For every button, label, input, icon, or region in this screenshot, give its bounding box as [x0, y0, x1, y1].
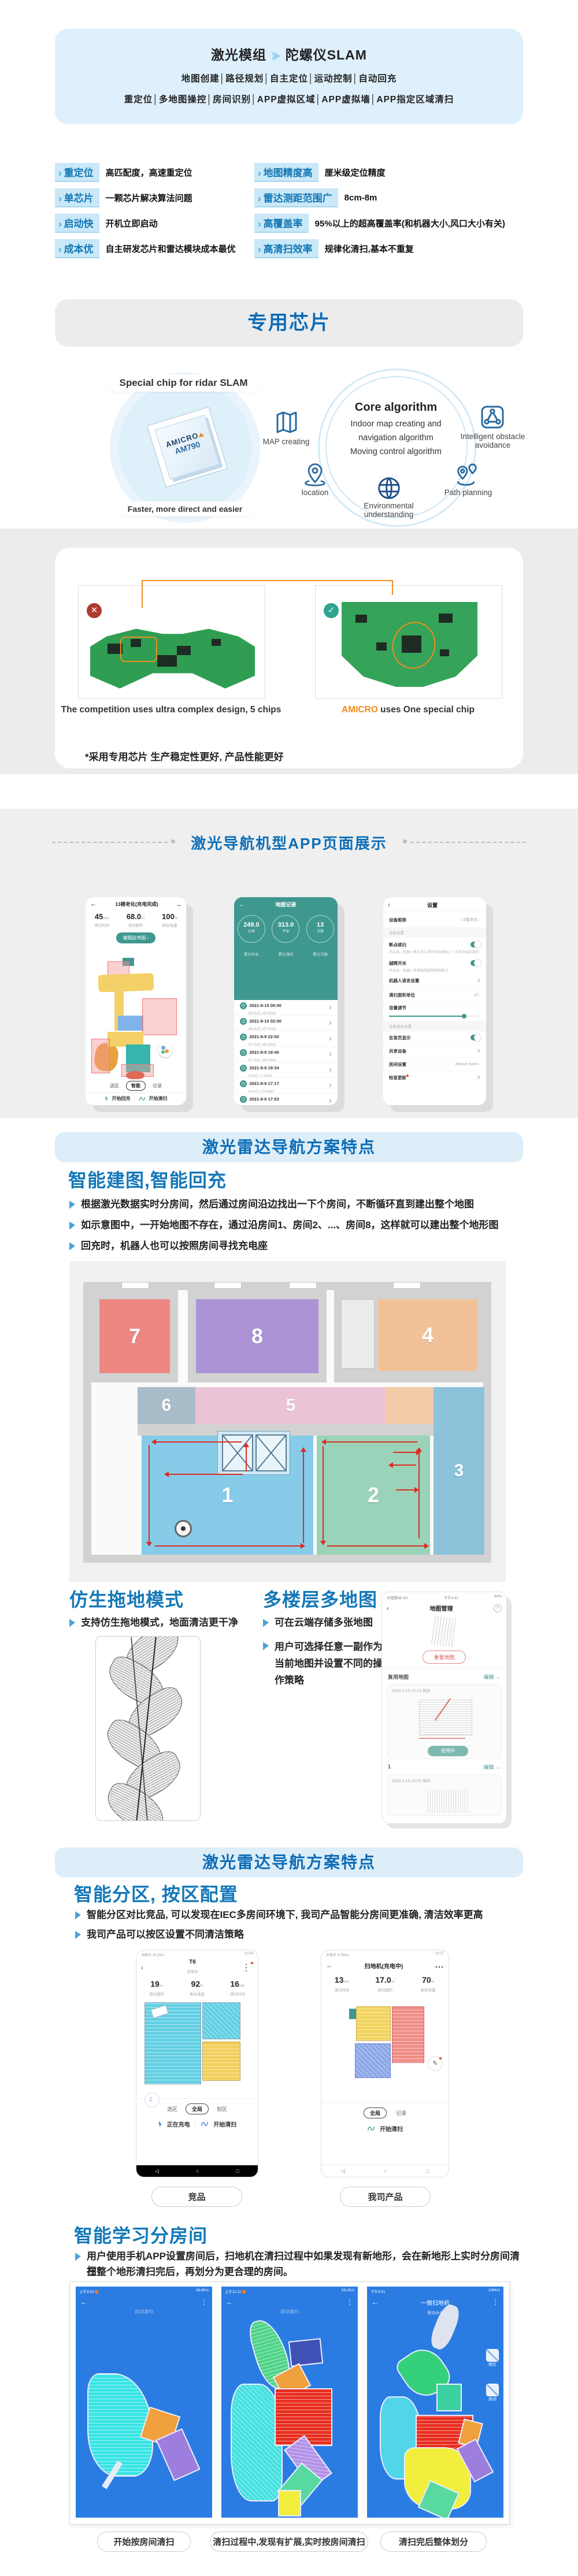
path-arrow [393, 1452, 416, 1453]
obstacle-avoidance-icon [479, 403, 506, 434]
zones-heading: 智能分区, 按区配置 [74, 1880, 238, 1906]
path-arrow [149, 1445, 150, 1542]
stat: 100%剩余电量 [162, 912, 177, 928]
bullet-arrow-icon [69, 1200, 75, 1209]
bullet: 回充时，机器人也可以按照房间寻找充电座 [69, 1239, 520, 1254]
record-list: ◷ 2021-8-10 06:0068.0㎡ | 45.0min› ◷ 2021… [234, 1000, 338, 1105]
stat: 19㎡清扫面积 [149, 1979, 164, 1997]
feature-grid: ›重定位高匹配度，高速重定位 ›地图精度高厘米级定位精度 ›单芯片一颗芯片解决算… [55, 159, 529, 261]
floorplan-diagram: 7 8 4 6 5 3 1 2 [69, 1261, 506, 1582]
our-phone-title: 扫地机(充电中) [365, 1961, 403, 1970]
chevron-icon: › [258, 218, 261, 229]
chip-highlight-annotation [120, 637, 157, 662]
competitor-phone-title: T6 [187, 1959, 198, 1965]
clock-icon: ◷ [240, 1080, 247, 1087]
total-circle: 13次数 [306, 915, 334, 943]
room-2: 2 [317, 1436, 430, 1555]
path-arrow [303, 1452, 304, 1543]
app-phone-map: ← 13楼老化(充电完成) … 45min清扫时间 68.0㎡清扫面积 100%… [86, 897, 186, 1105]
setting-row-update[interactable]: 检查更新› [383, 1070, 486, 1084]
auto-clean-title: 自动清扫 [76, 2309, 212, 2315]
start-clean-button[interactable]: 开始清扫 [213, 2120, 236, 2128]
clock-icon: ◷ [240, 1096, 247, 1103]
competitor-pcb [90, 626, 255, 690]
edit-link[interactable]: 编辑 → [483, 1763, 501, 1771]
bullet: 我司产品可以按区设置不同清洁策略 [75, 1927, 532, 1942]
setting-desc: 开启后，机器人将增强跨越障碍的能力 [383, 969, 486, 973]
annotation-line [392, 580, 393, 595]
more-icon[interactable]: … [435, 1960, 444, 1971]
feature-desc: 95%以上的超高覆盖率(和机器大小,风口大小有关) [315, 217, 505, 229]
feature-item: ›高覆盖率95%以上的超高覆盖率(和机器大小,风口大小有关) [254, 214, 529, 233]
lightning-icon [104, 1096, 108, 1102]
learning-screenshot-2: 上午11:11 58.2K/s ← ⋮ 自动清扫 [221, 2287, 358, 2518]
bullet: 可在云端存储多张地图 [263, 1615, 379, 1630]
record-row[interactable]: ◷ 2021-8-9 19:344.0㎡ | 1.0min› [234, 1062, 338, 1078]
map-region [436, 2384, 462, 2411]
elevator-shaft [222, 1434, 253, 1471]
amicro-pcb-box: ✓ [315, 585, 502, 699]
multimap-heading: 多楼层多地图 [263, 1585, 377, 1612]
feature-badge: ›成本优 [55, 239, 99, 258]
bullet: 用户可选择任意一副作为当前地图并设置不同的操作策略 [263, 1638, 384, 1689]
charging-subtitle: 充电中 [187, 1970, 198, 1974]
app-phone-records: ← 地图记录 249.0分钟 313.0平米 13次数 累计时 [234, 897, 338, 1105]
feature-badge: ›高覆盖率 [254, 214, 309, 233]
carrier-label: 中国移动 4G [387, 1594, 407, 1600]
app-phone-settings: ‹ 设置 设备昵称 13楼老化 › 功能设置 断点续扫 开启后，机器人再次进入清… [383, 897, 486, 1105]
toggle-on[interactable] [470, 1035, 480, 1040]
record-row[interactable]: ◷ 2021-8-9 17:176.0㎡ | 13.0min› [234, 1078, 338, 1094]
our-map: ✎ [321, 1993, 449, 2102]
map-region [356, 2006, 391, 2041]
feature-desc: 开机立即启动 [106, 217, 158, 229]
chevron-icon: › [58, 193, 62, 204]
room-3: 3 [433, 1387, 484, 1555]
more-icon[interactable]: ⋮ [492, 2298, 499, 2306]
check-mark-icon: ✓ [324, 603, 339, 618]
reset-map-button[interactable]: 重置地图 [423, 1651, 465, 1664]
path-arrow [418, 1452, 420, 1538]
back-icon[interactable]: ← [239, 901, 245, 908]
toggle-on[interactable] [470, 942, 480, 947]
toggle-on[interactable] [470, 960, 480, 966]
feature-item: ›重定位高匹配度，高速重定位 [55, 163, 254, 182]
competitor-pcb-box: ✕ [78, 585, 265, 699]
setting-row-nickname[interactable]: 设备昵称 13楼老化 › [383, 912, 486, 927]
clock-icon: ◷ [240, 1049, 247, 1056]
setting-desc: 开启后，机器人再次进入清扫时会继续上一次未完成的清扫 [383, 950, 486, 955]
status-speed: 106K/s [488, 2288, 500, 2294]
location-label: location [283, 488, 347, 497]
core-line1: Indoor map creating and [350, 419, 441, 429]
path-arrow [327, 1545, 424, 1547]
path-arrow [156, 1441, 242, 1443]
stat: 92%剩余电量 [190, 1979, 205, 1997]
annotation-line [142, 580, 393, 581]
status-speed: 36.6K/s [196, 2288, 209, 2294]
bullet-arrow-icon [75, 2252, 81, 2261]
learning-caption-1: 开始按房间清扫 [97, 2532, 191, 2552]
clock-icon: ◷ [240, 1018, 247, 1025]
amicro-caption: AMICRO uses One special chip [303, 705, 513, 715]
stat: 70%剩余电量 [421, 1975, 436, 1993]
room-6: 6 [138, 1387, 195, 1424]
android-navbar[interactable]: ◁○□ [136, 2165, 258, 2177]
robot-icon [175, 1520, 192, 1537]
back-icon[interactable]: ← [326, 1961, 333, 1969]
edit-link[interactable]: 编辑 → [483, 1673, 501, 1681]
map-region [118, 1016, 143, 1031]
path-arrow [323, 1446, 324, 1541]
map-creating-icon [273, 409, 301, 440]
edit-map-button[interactable]: ✎ [428, 2056, 443, 2071]
bullet: 支持仿生拖地模式，地面清洁更干净 [69, 1615, 254, 1630]
charging-button[interactable]: 正在充电 [167, 2120, 190, 2128]
title-dash-left [52, 842, 168, 843]
map-region [278, 2490, 301, 2516]
path-arrow [396, 1489, 414, 1490]
update-badge [406, 1075, 409, 1077]
current-map-sketch [382, 1614, 506, 1651]
path-planning-icon [454, 462, 480, 492]
path-arrow [326, 1441, 417, 1443]
status-time: 上午9:52 [79, 2290, 94, 2294]
learning-heading: 智能学习分房间 [74, 2221, 208, 2248]
room-4: 4 [378, 1299, 477, 1371]
feature-desc: 自主研发芯片和雷达模块成本最优 [106, 243, 236, 255]
pcb-compare-card: ✕ ✓ [55, 548, 523, 768]
status-time: 上午11:11 [225, 2290, 241, 2294]
total-label: 累计时长 [244, 951, 259, 957]
settings-section-label: 设备基本设置 [383, 1021, 486, 1031]
map-card[interactable]: 2020.4.15 16:03 保存 [387, 1774, 502, 1816]
learning-panel: 上午9:52 36.6K/s ← ⋮ 自动清扫 上午11:11 58.2K/s … [69, 2281, 510, 2525]
bullet-arrow-icon [69, 1241, 75, 1250]
learning-screenshot-3: 下午4:01 106K/s ← 一微扫地机 等待命令 ⋮ 禁 [367, 2287, 503, 2518]
total-label: 累计次数 [313, 951, 328, 957]
no-go-zone [91, 1039, 110, 1073]
room-icon [486, 2384, 499, 2396]
core-line3: Moving control algorithm [350, 447, 442, 456]
help-icon[interactable]: ? [494, 1604, 502, 1612]
auto-clean-title: 自动清扫 [221, 2309, 358, 2315]
tab-divide-zone[interactable]: 划区 [217, 2105, 227, 2113]
zones-banner: 激光雷达导航方案特点 [55, 1848, 523, 1878]
status-left: 未插卡 15.2K/s [141, 1952, 164, 1957]
annotation-line [142, 580, 143, 608]
map-region [126, 1071, 144, 1079]
amicro-pcb [342, 602, 477, 689]
no-go-tool[interactable]: 禁区 [486, 2349, 499, 2367]
stat: 17.0㎡清扫面积 [375, 1975, 394, 1993]
back-icon[interactable]: ‹ [141, 1964, 143, 1972]
map-card-sketch [428, 1790, 468, 1813]
settings-section-label: 功能设置 [383, 927, 486, 938]
app-section: 激光导航机型APP页面展示 ← 13楼老化(充电完成) … 45min清扫时间 … [0, 809, 578, 1118]
room-7: 7 [99, 1299, 170, 1373]
map-card-active[interactable]: 2020.4.15 15:13 保存 使用中 [387, 1684, 502, 1759]
bullet-arrow-icon [75, 1910, 81, 1919]
map-layers-button[interactable] [158, 1043, 172, 1057]
path-arrow [246, 1447, 247, 1471]
back-icon[interactable]: ← [90, 901, 97, 908]
hero-line1: 地图创建│路径规划│自主定位│运动控制│自动回充 [55, 72, 523, 84]
time-label: 下午4:41 [443, 1594, 458, 1600]
record-row[interactable]: ◷ 2021-8-9 17:033.0㎡ | 7.4min› [234, 1094, 338, 1105]
core-algorithm-title: Core algorithm [335, 401, 457, 414]
bullet-arrow-icon [69, 1221, 75, 1229]
phone3-title: 设置 [427, 901, 438, 909]
mop-heading: 仿生拖地模式 [69, 1585, 184, 1612]
status-icon [242, 2290, 246, 2294]
tab-select-zone[interactable]: 选区 [167, 2105, 177, 2113]
feature-item: ›地图精度高厘米级定位精度 [254, 163, 529, 182]
title-dash-right [410, 842, 526, 843]
title-dot-left [171, 839, 175, 843]
chevron-icon: › [58, 168, 62, 179]
phone1-title: 13楼老化(充电完成) [115, 901, 158, 908]
feature-item: ›启动快开机立即启动 [55, 214, 254, 233]
status-time: 下午4:01 [370, 2288, 386, 2294]
feature-item: ›高清扫效率规律化清扫,基本不重复 [254, 239, 529, 258]
path-arrow [169, 1474, 243, 1475]
no-go-zone [142, 998, 177, 1035]
chevron-icon: › [58, 218, 62, 229]
mop-pattern-image [95, 1636, 201, 1821]
stat: 68.0㎡清扫面积 [127, 912, 144, 928]
environment-label: Environmental understanding [347, 501, 431, 519]
feature-badge: ›高清扫效率 [254, 239, 318, 258]
feature-desc: 规律化清扫,基本不重复 [325, 243, 414, 255]
status-speed: 58.2K/s [342, 2288, 354, 2294]
nav1-heading: 智能建图,智能回充 [68, 1166, 227, 1192]
setting-row-home: 在首页显示 [383, 1031, 486, 1044]
start-clean-button[interactable]: 开始清扫 [149, 1095, 168, 1102]
special-chip-label: Special chip for ridar SLAM [107, 374, 260, 392]
bullet-arrow-icon [263, 1641, 269, 1650]
feature-badge: ›地图精度高 [254, 163, 318, 182]
map-card-time: 2020.4.15 15:13 保存 [387, 1685, 501, 1697]
android-navbar[interactable]: ◁○□ [321, 2165, 449, 2177]
learning-screenshot-1: 上午9:52 36.6K/s ← ⋮ 自动清扫 [76, 2287, 212, 2518]
more-icon[interactable]: ⋮ [346, 2298, 353, 2306]
pcb-gray-band: ✕ ✓ [0, 529, 578, 774]
feature-badge: ›单芯片 [55, 188, 99, 207]
feature-badge: ›雷达测距范围广 [254, 188, 338, 207]
clock-icon: ◷ [240, 1002, 247, 1009]
bullet: 如示意图中，一开始地图不存在，通过沿房间1、房间2、...、房间8，这样就可以建… [69, 1218, 520, 1233]
setting-row-language[interactable]: 机器人语言设置› [383, 973, 486, 988]
night-mode-button[interactable]: ☾ [144, 2092, 160, 2107]
start-clean-button[interactable]: 开始清扫 [380, 2124, 403, 2133]
map-region [155, 2428, 200, 2481]
tab-select-zone[interactable]: 选区 [110, 1083, 119, 1089]
battery-label: 44% [494, 1594, 502, 1600]
map-region [355, 2043, 391, 2078]
total-label: 累计清扫 [278, 951, 293, 957]
setting-row-obstacle: 越障开关 [383, 957, 486, 969]
feature-badge: ›启动快 [55, 214, 99, 233]
learning-caption-2: 清扫过程中,发现有扩展,实时按房间清扫 [210, 2532, 368, 2552]
record-row[interactable]: ◷ 2021-8-10 06:0068.0㎡ | 45.0min› [234, 1000, 338, 1016]
setting-row-resume: 断点续扫 [383, 939, 486, 950]
map-region [98, 973, 154, 992]
tab-records[interactable]: 记录 [153, 1083, 162, 1089]
bullet: 智能分区对比竞品, 可以发现在IEC多房间环境下, 我司产品智能分房间更准确, … [75, 1908, 532, 1923]
core-line2: navigation algorithm [358, 433, 433, 443]
volume-slider[interactable] [389, 1014, 480, 1018]
feature-item: ›雷达测距范围广8cm-8m [254, 188, 529, 207]
app-section-title: 激光导航机型APP页面展示 [182, 832, 396, 853]
our-product-caption-pill: 我司产品 [340, 2187, 431, 2207]
path-arrow [155, 1545, 301, 1547]
more-icon[interactable]: … [177, 902, 181, 907]
status-right: 10:27 [435, 1952, 444, 1957]
map-group-label: 1 [388, 1764, 391, 1770]
room-8: 8 [196, 1299, 318, 1373]
setting-row-share[interactable]: 共享设备› [383, 1044, 486, 1057]
x-mark-icon: ✕ [87, 603, 102, 618]
our-product-phone: 未插卡 6.78K/s 10:27 ← 扫地机(充电中) … 13min清扫时间… [321, 1950, 449, 2177]
hero-title-right: 陀螺仪SLAM [286, 47, 367, 62]
hero-title-left: 激光模组 [211, 47, 266, 62]
map-card-time: 2020.4.15 16:03 保存 [387, 1775, 501, 1787]
map-manage-phone: 中国移动 4G 下午4:41 44% ‹ 地图管理 ? 重置地图 复用地图 编辑… [381, 1592, 507, 1824]
tab-global[interactable]: 全局 [186, 2103, 209, 2114]
brand-accent-icon [198, 432, 205, 438]
total-circle: 249.0分钟 [238, 915, 265, 943]
setting-row-unit[interactable]: 清扫面积单位 ㎡ › [383, 988, 486, 1002]
reuse-map-label: 复用地图 [388, 1673, 409, 1681]
feature-desc: 一颗芯片解决算法问题 [106, 192, 192, 204]
chevron-icon: › [258, 168, 261, 179]
setting-row-room[interactable]: 房间设置 default room › [383, 1057, 486, 1070]
map-creating-label: MAP creating [254, 437, 318, 446]
learning-caption-3: 清扫完后整体划分 [380, 2532, 487, 2552]
tab-smart[interactable]: 智能 [126, 1081, 146, 1091]
no-go-icon [486, 2349, 499, 2362]
map-manage-title: 地图管理 [430, 1604, 453, 1612]
status-icon [95, 2290, 98, 2294]
phone2-title: 地图记录 [275, 901, 296, 908]
room-5: 5 [195, 1387, 386, 1424]
status-right: 10:54 [244, 1952, 253, 1957]
clock-icon: ◷ [240, 1065, 247, 1072]
map-region [288, 2338, 323, 2367]
more-icon[interactable]: ⋮ [242, 1962, 253, 1973]
bullet: 根据激光数据实时分房间，然后通过房间沿边找出一下个房间，不断循环直到建出整个地图 [69, 1197, 520, 1212]
clean-path-icon [201, 2121, 209, 2127]
start-recharge-button[interactable]: 开始回充 [112, 1095, 130, 1102]
competitor-phone: 未插卡 15.2K/s 10:54 ‹ T6 充电中 ⋮ 19㎡清扫面积 92%… [136, 1950, 258, 2177]
feature-desc: 高匹配度，高速重定位 [106, 166, 192, 179]
stat: 45min清扫时间 [94, 912, 109, 928]
map-line-annotation [419, 1738, 465, 1739]
path-arrow [393, 1464, 416, 1466]
map-region [202, 2042, 240, 2081]
slider-knob[interactable] [462, 1014, 466, 1018]
device-title: 一微扫地机 [421, 2298, 450, 2307]
nav1-banner: 激光雷达导航方案特点 [55, 1132, 523, 1162]
clock-icon: ◷ [240, 1034, 247, 1040]
location-icon [302, 461, 328, 489]
chevron-icon: › [58, 244, 62, 255]
competitor-map [136, 2000, 258, 2092]
section-banner-chip: 专用芯片 [55, 299, 523, 347]
feature-desc: 厘米级定位精度 [325, 166, 386, 179]
bullet-arrow-icon [69, 1618, 75, 1627]
hero-title: 激光模组 陀螺仪SLAM [55, 44, 523, 64]
title-dot-right [403, 839, 407, 843]
bullet-continuation: 在整个地形清扫完后，再划分为更合理的房间。 [87, 2265, 549, 2280]
chevron-icon: › [258, 193, 261, 204]
room-tool[interactable]: 房间 [486, 2384, 499, 2402]
unlabeled-room [341, 1299, 375, 1369]
clean-path-icon [367, 2125, 375, 2132]
status-left: 未插卡 6.78K/s [326, 1952, 349, 1957]
record-row[interactable]: ◷ 2021-8-9 19:4067.0㎡ | 54.0min› [234, 1047, 338, 1062]
back-icon[interactable]: ← [372, 2298, 379, 2306]
competitor-caption: The competition uses ultra complex desig… [61, 705, 281, 715]
phone1-map [91, 958, 180, 1079]
feature-item: ›单芯片一颗芯片解决算法问题 [55, 188, 254, 207]
competitor-caption-pill: 竞品 [151, 2187, 242, 2207]
chip-highlight-annotation [386, 616, 442, 675]
map-region [392, 2006, 424, 2063]
path-planning-label: Path planning [436, 488, 500, 497]
more-icon[interactable]: ⋮ [201, 2298, 208, 2306]
chip-note: *采用专用芯片 生产稳定性更好, 产品性能更好 [85, 749, 284, 763]
back-icon[interactable]: ← [80, 2298, 87, 2306]
feature-item: ›成本优自主研发芯片和雷达模块成本最优 [55, 239, 254, 258]
chip-fast-caption: Faster, more direct and easier [118, 501, 251, 516]
obstacle-avoidance-label: Intelligent obstacle avoidance [448, 432, 538, 449]
stat: 16min清扫时间 [230, 1979, 245, 1997]
hero-card: 激光模组 陀螺仪SLAM 地图创建│路径规划│自主定位│运动控制│自动回充 重定… [55, 29, 523, 124]
back-icon[interactable]: ‹ [388, 901, 390, 909]
chevron-icon: › [258, 244, 261, 255]
stat: 13min清扫时间 [334, 1975, 349, 1993]
environment-icon [376, 475, 402, 504]
back-icon[interactable]: ‹ [387, 1604, 389, 1612]
back-icon[interactable]: ← [226, 2298, 233, 2306]
feature-desc: 8cm-8m [344, 193, 377, 203]
lightning-icon [158, 2121, 162, 2128]
bullet-arrow-icon [263, 1618, 269, 1627]
tab-records[interactable]: 记录 [396, 2109, 406, 2117]
feature-badge: ›重定位 [55, 163, 99, 182]
bullet-arrow-icon [75, 1930, 81, 1939]
map-region [202, 2002, 240, 2039]
hero-line2: 重定位│多地图操控│房间识别│APP虚拟区域│APP虚拟墙│APP指定区域清扫 [55, 92, 523, 105]
total-circle: 313.0平米 [272, 915, 299, 943]
tab-global[interactable]: 全局 [364, 2107, 387, 2118]
clean-path-icon [139, 1096, 146, 1102]
product-page: 激光模组 陀螺仪SLAM 地图创建│路径规划│自主定位│运动控制│自动回充 重定… [0, 0, 578, 2576]
elevator-shaft [255, 1434, 287, 1471]
setting-row-volume: 音量调节 [383, 1002, 486, 1013]
record-row[interactable]: ◷ 2021-8-9 22:0067.0㎡ | 46.0min› [234, 1031, 338, 1047]
record-row[interactable]: ◷ 2021-8-10 02:0068.0㎡ | 47.0min› [234, 1016, 338, 1031]
edit-map-button[interactable]: 编辑此地图 › [116, 932, 156, 943]
in-use-tag: 使用中 [428, 1746, 468, 1756]
